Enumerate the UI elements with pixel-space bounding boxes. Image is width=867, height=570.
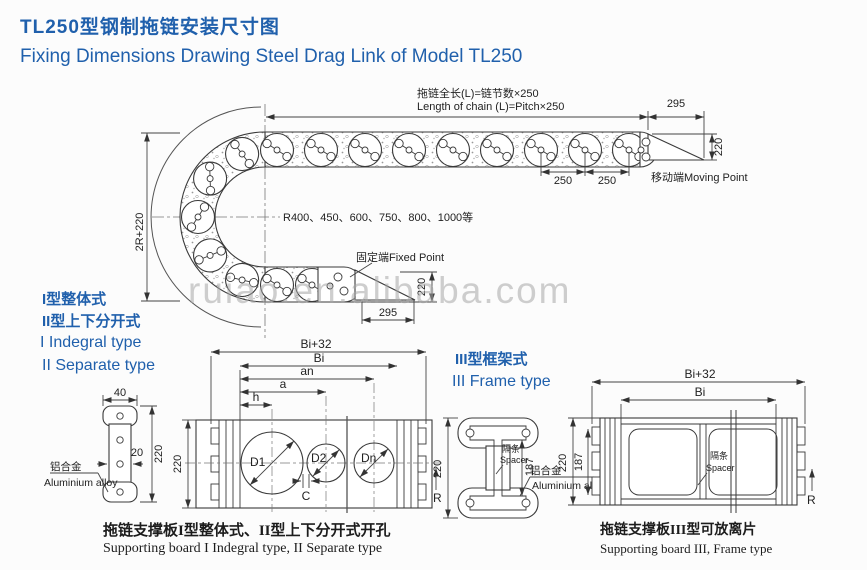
chain-length-formula-en: Length of chain (L)=Pitch×250: [417, 101, 564, 113]
board3-dim-bi32: Bi+32: [684, 367, 715, 381]
board12-gap-c: C: [302, 489, 311, 503]
fixed-point-label: 固定端Fixed Point: [356, 250, 444, 264]
board12-hole-d1: D1: [250, 455, 266, 469]
side-plate-material-en: Aluminium alloy: [44, 477, 118, 489]
ibeam-spacer-zh: 隔条: [502, 443, 520, 454]
side-plate-material-zh: 铝合金: [50, 460, 82, 473]
dim-220-fixed: 220: [416, 278, 428, 296]
dim-220-moving: 220: [713, 138, 725, 156]
board12-dim-bi: Bi: [314, 351, 325, 365]
board12-dim-bi32: Bi+32: [300, 337, 331, 351]
board12-dim-a: a: [280, 377, 287, 391]
bend-radius-series-label: R400、450、600、750、800、1000等: [283, 210, 473, 224]
board3-dim-bi: Bi: [695, 385, 706, 399]
board12-dim-an: an: [300, 364, 313, 378]
board3-dim-187: 187: [573, 453, 585, 471]
technical-drawing-svg: 拖链全长(L)=链节数×250 Length of chain (L)=Pitc…: [0, 0, 867, 570]
board3-spacer-en: Spacer: [706, 463, 735, 473]
side-plate-dim-20: 20: [131, 447, 143, 459]
board12-dim-220: 220: [172, 455, 184, 473]
ibeam-dim-220: 220: [432, 460, 444, 478]
dim-2r-220: 2R+220: [134, 213, 146, 252]
moving-end-bracket: [638, 132, 704, 167]
dim-250-left: 250: [554, 175, 572, 187]
ibeam-spacer-en: Spacer: [500, 455, 529, 465]
chain-length-formula-zh: 拖链全长(L)=链节数×250: [417, 86, 539, 100]
drawing-page: TL250型钢制拖链安装尺寸图 Fixing Dimensions Drawin…: [0, 0, 867, 570]
dim-295-top: 295: [667, 98, 685, 110]
board3-spacer-zh: 隔条: [710, 450, 728, 461]
board3-radius-r: R: [807, 493, 816, 507]
side-plate-dim-220: 220: [153, 445, 165, 463]
chain-drawing: 拖链全长(L)=链节数×250 Length of chain (L)=Pitc…: [134, 86, 748, 338]
moving-point-label: 移动端Moving Point: [651, 171, 748, 184]
dim-295-bottom: 295: [379, 307, 397, 319]
board12-hole-dn: Dn: [361, 451, 376, 465]
dim-250-right: 250: [598, 175, 616, 187]
board3-drawing: Bi+32 Bi 220 187 隔条 Spacer R: [557, 367, 816, 513]
board12-hole-d2: D2: [311, 451, 327, 465]
board12-dim-h: h: [253, 390, 260, 404]
side-plate-dim-40: 40: [114, 387, 126, 399]
board12-drawing: Bi+32 Bi an a h 220 D1 D2 Dn C R: [172, 337, 443, 513]
side-plate-drawing: 40 220 20 铝合金 Aluminium alloy: [44, 387, 165, 502]
board3-dim-220: 220: [557, 454, 569, 472]
board12-radius-r: R: [433, 491, 442, 505]
